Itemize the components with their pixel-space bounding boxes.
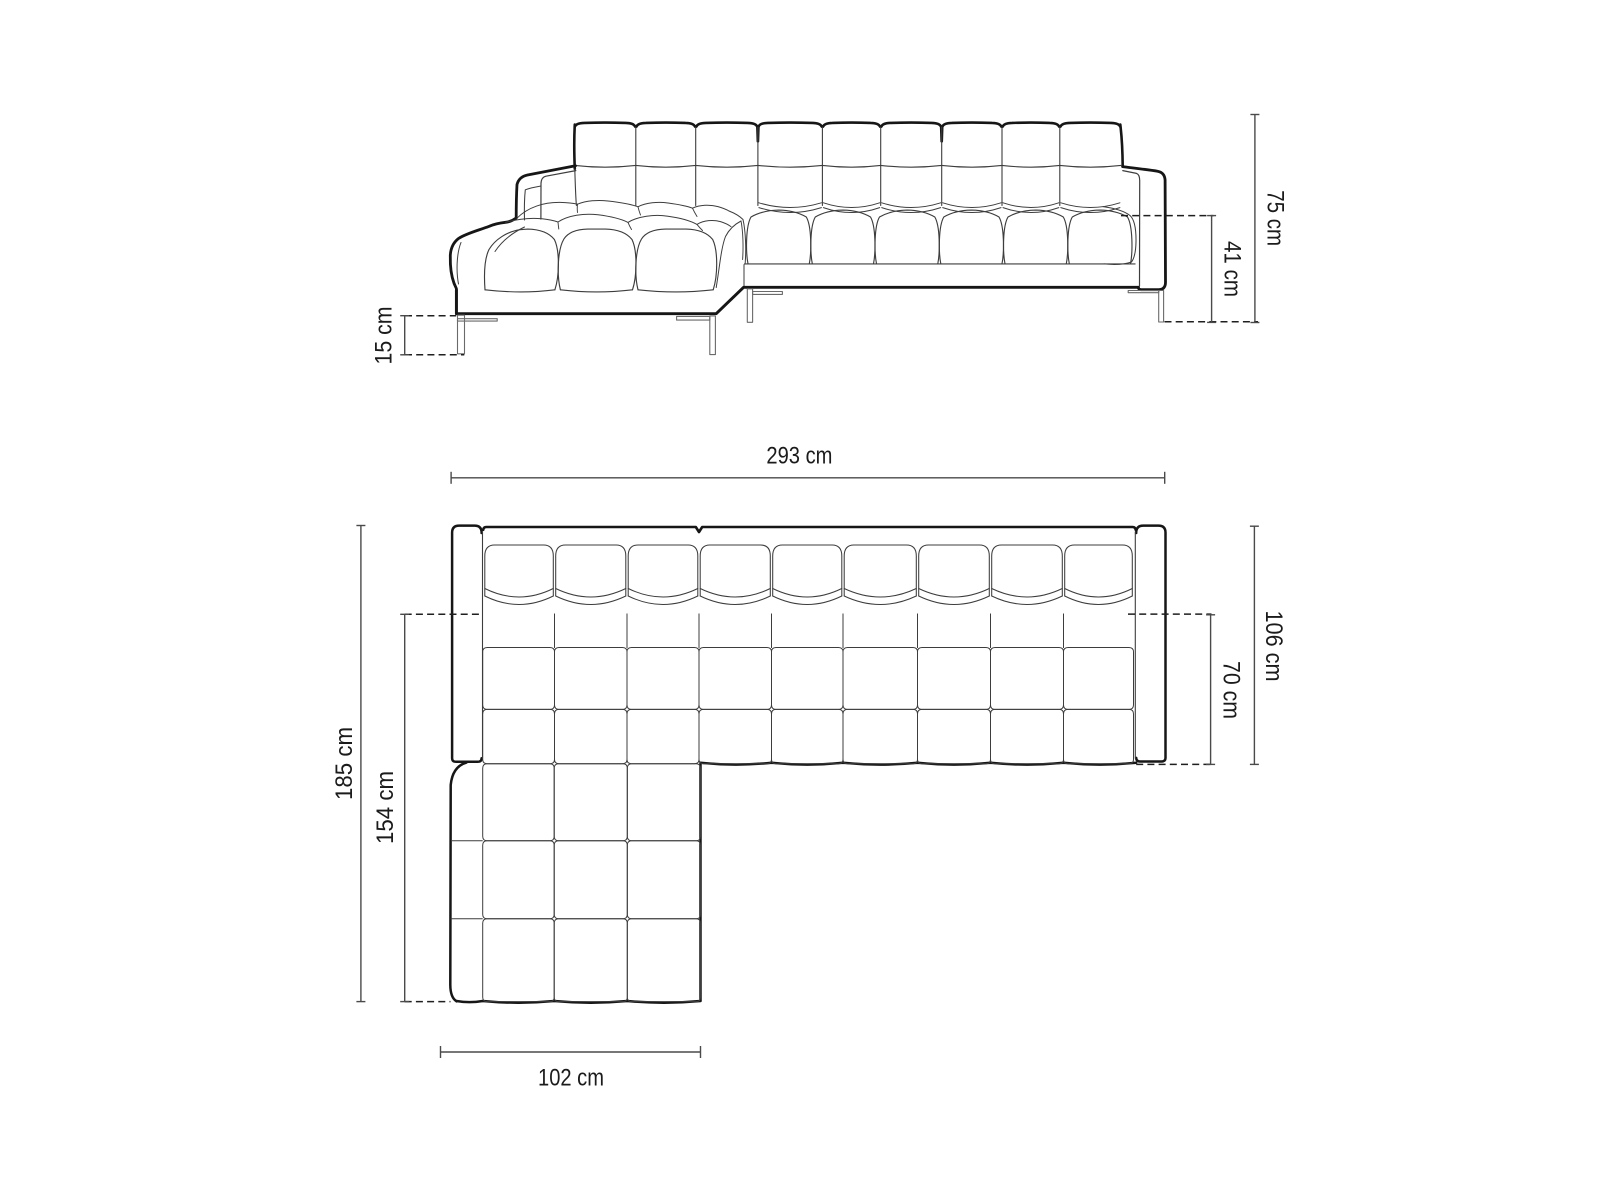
svg-text:293 cm: 293 cm: [766, 443, 832, 470]
svg-text:15 cm: 15 cm: [371, 307, 398, 365]
svg-text:102 cm: 102 cm: [538, 1065, 604, 1092]
svg-text:106 cm: 106 cm: [1260, 611, 1287, 682]
svg-text:41 cm: 41 cm: [1218, 241, 1245, 297]
svg-text:185 cm: 185 cm: [331, 727, 358, 800]
svg-text:154 cm: 154 cm: [372, 771, 399, 844]
svg-text:75 cm: 75 cm: [1261, 190, 1288, 246]
svg-text:70 cm: 70 cm: [1218, 661, 1245, 719]
